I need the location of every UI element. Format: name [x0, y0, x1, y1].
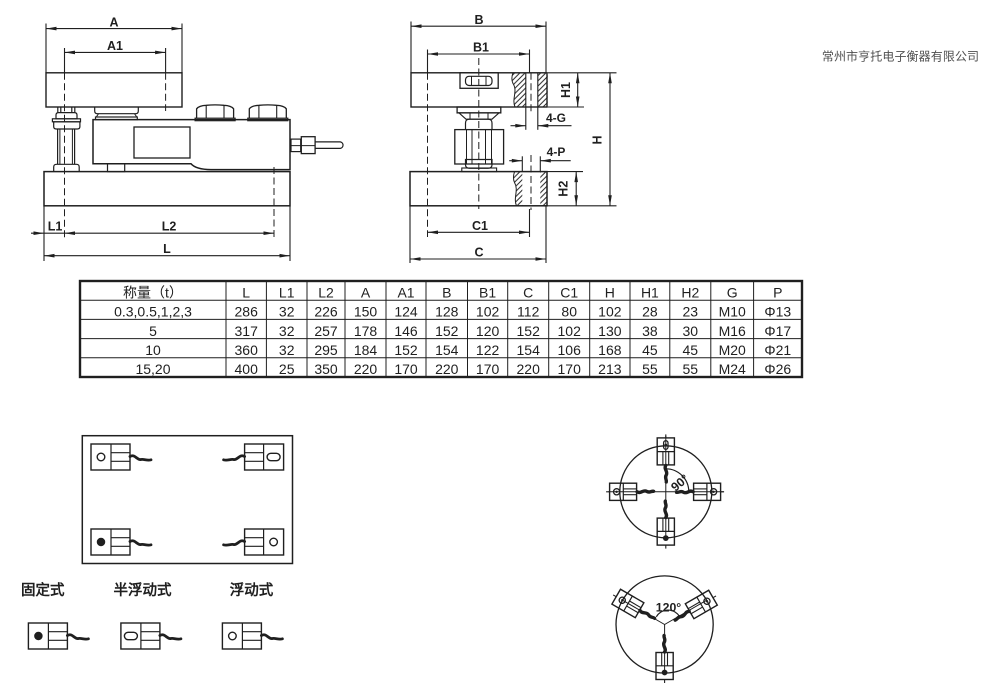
svg-text:H2: H2: [557, 181, 571, 197]
svg-text:固定式: 固定式: [21, 581, 65, 599]
svg-text:Φ21: Φ21: [764, 342, 791, 358]
svg-text:220: 220: [517, 361, 541, 377]
svg-text:25: 25: [279, 361, 295, 377]
svg-text:L: L: [242, 284, 250, 300]
svg-text:286: 286: [235, 304, 259, 320]
svg-text:122: 122: [476, 342, 500, 358]
svg-text:A1: A1: [107, 39, 123, 53]
svg-text:152: 152: [394, 342, 418, 358]
svg-text:28: 28: [642, 304, 658, 320]
svg-text:半浮动式: 半浮动式: [114, 581, 172, 599]
svg-text:32: 32: [279, 342, 295, 358]
svg-text:4-G: 4-G: [546, 111, 566, 125]
svg-text:H: H: [591, 135, 605, 144]
svg-text:10: 10: [145, 342, 161, 358]
svg-text:170: 170: [476, 361, 500, 377]
svg-text:L2: L2: [318, 284, 334, 300]
svg-text:112: 112: [517, 304, 540, 320]
svg-text:45: 45: [642, 342, 658, 358]
svg-text:32: 32: [279, 323, 295, 339]
svg-text:102: 102: [598, 304, 622, 320]
svg-text:168: 168: [598, 342, 622, 358]
svg-text:L2: L2: [162, 220, 177, 234]
svg-text:Φ13: Φ13: [764, 304, 791, 320]
svg-text:H1: H1: [559, 82, 573, 98]
svg-text:C: C: [474, 245, 483, 259]
svg-text:30: 30: [683, 323, 699, 339]
svg-text:360: 360: [235, 342, 259, 358]
svg-text:350: 350: [314, 361, 338, 377]
svg-text:B: B: [442, 284, 451, 300]
svg-text:220: 220: [354, 361, 378, 377]
svg-text:220: 220: [435, 361, 459, 377]
svg-text:L1: L1: [48, 220, 63, 234]
svg-text:M10: M10: [719, 304, 746, 320]
svg-text:23: 23: [683, 304, 699, 320]
svg-text:152: 152: [517, 323, 541, 339]
svg-text:5: 5: [149, 323, 157, 339]
svg-text:124: 124: [394, 304, 418, 320]
svg-text:H1: H1: [641, 284, 659, 300]
svg-text:295: 295: [314, 342, 338, 358]
svg-text:45: 45: [683, 342, 699, 358]
svg-text:G: G: [727, 284, 738, 300]
svg-text:106: 106: [558, 342, 582, 358]
svg-text:B1: B1: [479, 284, 496, 300]
svg-text:102: 102: [476, 304, 500, 320]
svg-text:400: 400: [235, 361, 259, 377]
svg-text:M20: M20: [719, 342, 746, 358]
svg-text:80: 80: [561, 304, 577, 320]
svg-text:Φ26: Φ26: [764, 361, 791, 377]
svg-text:P: P: [773, 284, 782, 300]
svg-text:C1: C1: [560, 284, 578, 300]
svg-text:M24: M24: [719, 361, 746, 377]
svg-text:H: H: [605, 284, 615, 300]
svg-text:102: 102: [558, 323, 582, 339]
svg-text:55: 55: [642, 361, 658, 377]
svg-text:120°: 120°: [656, 601, 682, 615]
svg-text:L: L: [163, 242, 171, 256]
svg-text:154: 154: [517, 342, 541, 358]
svg-text:H2: H2: [681, 284, 699, 300]
svg-text:32: 32: [279, 304, 295, 320]
svg-text:178: 178: [354, 323, 378, 339]
svg-text:C: C: [523, 284, 533, 300]
svg-text:4-P: 4-P: [547, 145, 566, 159]
svg-text:128: 128: [435, 304, 459, 320]
svg-text:257: 257: [314, 323, 338, 339]
svg-text:38: 38: [642, 323, 658, 339]
svg-text:称量（t）: 称量（t）: [123, 284, 183, 300]
svg-text:184: 184: [354, 342, 378, 358]
svg-text:170: 170: [394, 361, 418, 377]
svg-text:55: 55: [683, 361, 699, 377]
svg-text:L1: L1: [279, 284, 295, 300]
svg-text:226: 226: [314, 304, 338, 320]
svg-text:A1: A1: [397, 284, 414, 300]
svg-text:B1: B1: [473, 41, 489, 55]
svg-text:常州市亨托电子衡器有限公司: 常州市亨托电子衡器有限公司: [822, 48, 979, 63]
svg-text:130: 130: [598, 323, 622, 339]
svg-text:15,20: 15,20: [135, 361, 170, 377]
svg-text:152: 152: [435, 323, 459, 339]
svg-text:146: 146: [394, 323, 418, 339]
svg-text:317: 317: [235, 323, 259, 339]
svg-text:213: 213: [598, 361, 622, 377]
svg-text:B: B: [474, 13, 483, 27]
svg-text:120: 120: [476, 323, 500, 339]
svg-text:A: A: [109, 15, 118, 29]
svg-text:浮动式: 浮动式: [230, 581, 274, 599]
svg-text:0.3,0.5,1,2,3: 0.3,0.5,1,2,3: [114, 304, 192, 320]
svg-text:154: 154: [435, 342, 459, 358]
svg-text:150: 150: [354, 304, 378, 320]
svg-text:170: 170: [558, 361, 582, 377]
svg-text:M16: M16: [719, 323, 746, 339]
svg-text:Φ17: Φ17: [764, 323, 791, 339]
svg-text:C1: C1: [472, 219, 488, 233]
svg-text:A: A: [361, 284, 371, 300]
